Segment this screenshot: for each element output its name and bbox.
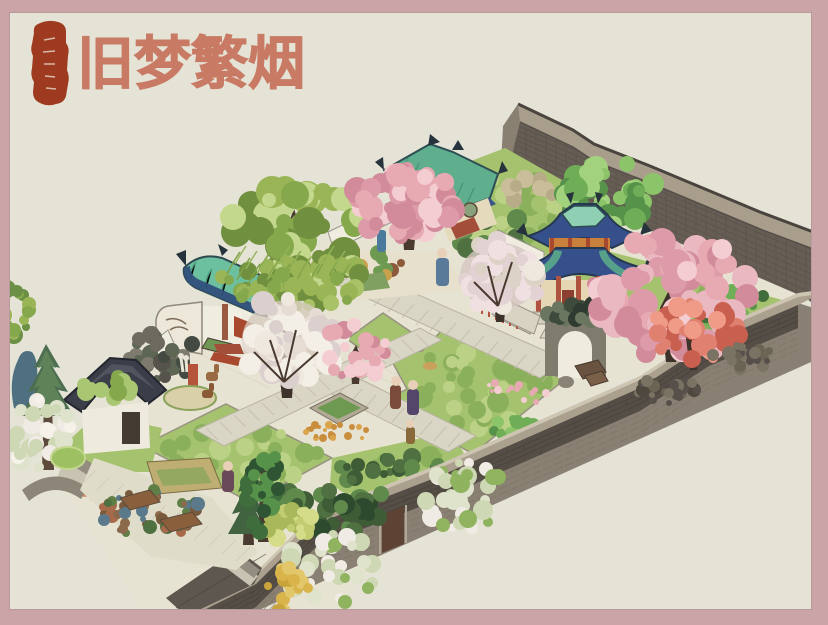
svg-text:旧梦繁烟: 旧梦繁烟	[77, 32, 305, 96]
